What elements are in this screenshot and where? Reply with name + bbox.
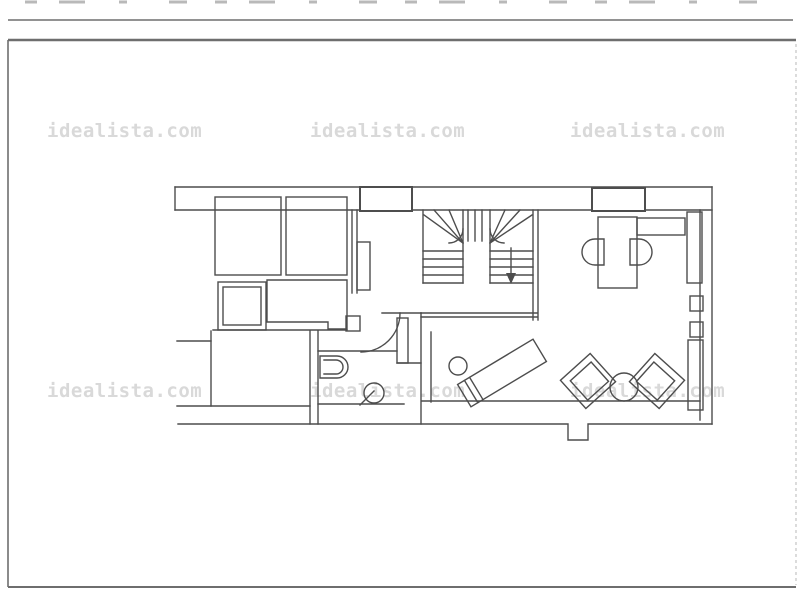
desk-chair-left	[582, 239, 604, 265]
door-swing-arc	[361, 313, 400, 352]
window-icon-right	[592, 188, 645, 211]
page-frame	[8, 2, 796, 587]
watermark-bottom-left: idealista.com	[47, 380, 202, 402]
stepped-rectangle	[267, 280, 347, 329]
floor-plan	[175, 187, 712, 440]
small-wall-box	[346, 316, 360, 331]
office-area	[582, 212, 703, 337]
watermark-top-center: idealista.com	[310, 120, 465, 142]
watermarks: idealista.com idealista.com idealista.co…	[47, 120, 725, 402]
bottom-wall-notch	[178, 424, 712, 440]
exterior-walls	[175, 187, 712, 440]
watermark-top-right: idealista.com	[570, 120, 725, 142]
left-rooms	[215, 197, 370, 331]
door-leaf-panel	[357, 242, 370, 290]
staircase	[423, 210, 533, 284]
scanned-floorplan-page: idealista.com idealista.com idealista.co…	[0, 0, 800, 600]
wall-box-2	[690, 322, 703, 337]
side-table	[449, 357, 467, 375]
double-border-square-inner	[223, 287, 261, 325]
sink-inner-line	[324, 360, 343, 374]
floorplan-image: idealista.com idealista.com idealista.co…	[0, 0, 800, 600]
room-rectangle-2	[286, 197, 347, 275]
windows	[360, 187, 645, 211]
watermark-top-left: idealista.com	[47, 120, 202, 142]
sun-lounger	[458, 339, 547, 407]
window-icon-left	[360, 187, 412, 211]
room-rectangle-1	[215, 197, 281, 275]
wall-box-1	[690, 296, 703, 311]
watermark-bottom-center: idealista.com	[310, 380, 465, 402]
desk-return-shelf	[637, 218, 685, 235]
double-border-square-outer	[218, 282, 266, 330]
desk-chair-right	[630, 239, 652, 265]
